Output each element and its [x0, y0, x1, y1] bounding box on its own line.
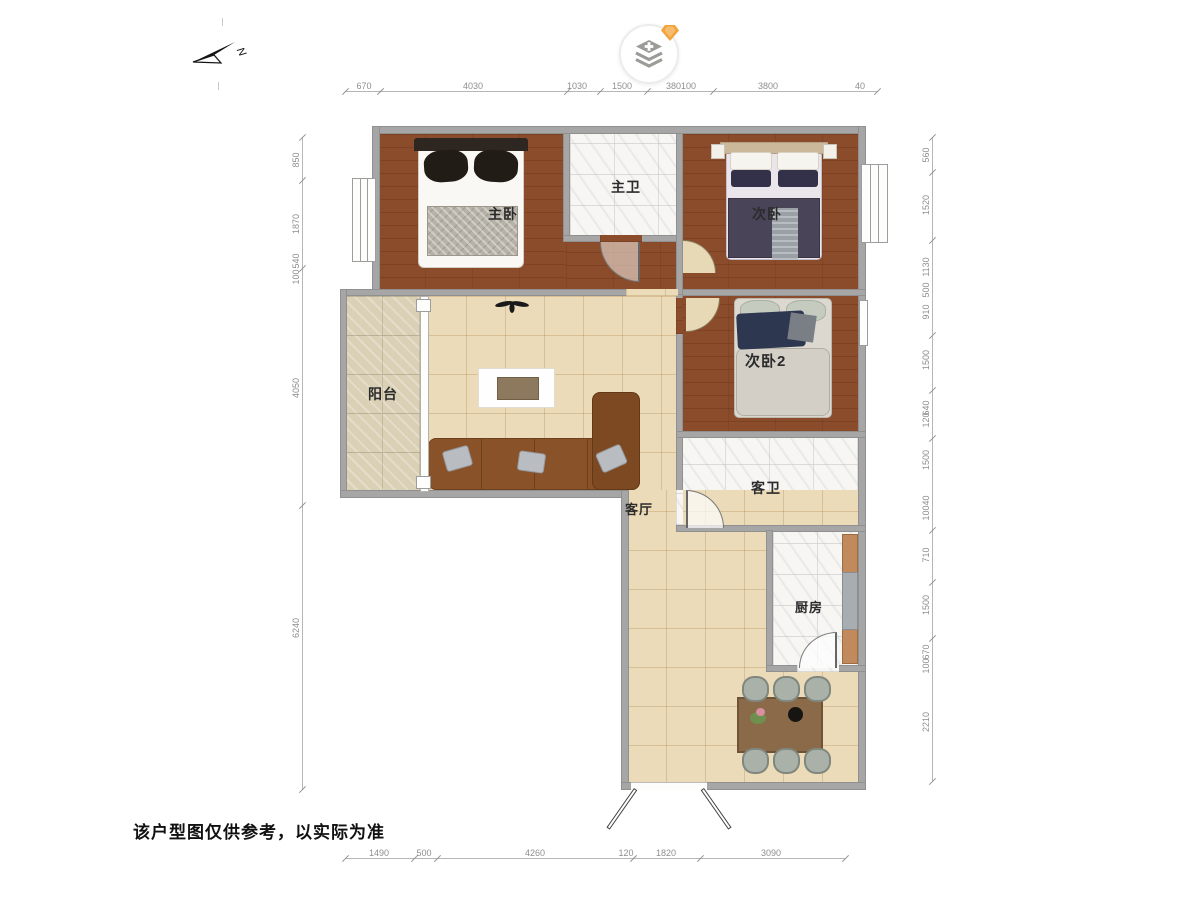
dim-label: 1500 — [612, 81, 632, 91]
dim-label: 500 — [416, 848, 431, 858]
dining-chair — [804, 676, 831, 702]
table-plate-icon — [788, 707, 803, 722]
wall-masterbed-bath — [563, 133, 570, 242]
dim-label: 560 — [921, 147, 931, 162]
dim-label: 10040 — [921, 495, 931, 520]
slider-track-bottom — [416, 476, 431, 489]
compass-tick-top — [222, 18, 223, 26]
dim-label: 4050 — [291, 378, 301, 398]
dim-label: 380100 — [666, 81, 696, 91]
dim-label: 3090 — [761, 848, 781, 858]
master-bed-pillow — [473, 149, 519, 183]
dim-label: 120 — [618, 848, 633, 858]
dining-chair — [804, 748, 831, 774]
dim-label: 40 — [855, 81, 865, 91]
kitchen-appliance — [842, 572, 858, 630]
room-label-living: 客厅 — [625, 499, 653, 518]
floorplan-page: N — [0, 0, 1200, 900]
dim-label: 4030 — [463, 81, 483, 91]
dim-label: 670 — [356, 81, 371, 91]
dim-label: 100 — [921, 658, 931, 673]
wall-mid-horizontal — [340, 289, 866, 296]
opening-guestbath-door — [676, 490, 683, 525]
bedroom2-nightstand — [711, 144, 725, 159]
opening-masterbath-door — [600, 235, 642, 242]
dim-label: 540 — [291, 253, 301, 268]
dining-chair — [773, 748, 800, 774]
room-label-guest-bath: 客卫 — [751, 478, 781, 498]
wall-lower-left — [621, 490, 629, 790]
compass-north-icon: N — [190, 30, 250, 80]
dimension-line-top — [345, 91, 877, 92]
window-master-bedroom-icon — [352, 178, 376, 262]
dim-label: 100 — [291, 269, 301, 284]
compass-label: N — [234, 46, 248, 59]
bedroom2-pillow-dark — [778, 170, 818, 187]
table-flowers-icon — [756, 708, 765, 716]
room-label-master-bath: 主卫 — [611, 177, 641, 197]
wall-bath-bedroom2 — [676, 133, 683, 296]
dim-label: 1520 — [921, 195, 931, 215]
dining-chair — [742, 676, 769, 702]
room-label-bedroom2: 次卧 — [752, 204, 782, 224]
bedroom3-cushion — [787, 312, 817, 342]
dimension-line-right — [932, 137, 933, 782]
room-label-master-bedroom: 主卧 — [488, 204, 518, 224]
opening-bedroom3-door — [676, 298, 683, 334]
dim-label: 1500 — [921, 450, 931, 470]
master-bed-headboard — [414, 138, 528, 151]
window-bedroom2-icon — [861, 164, 888, 243]
bedroom2-pillow-dark — [731, 170, 771, 187]
coffee-table — [497, 377, 539, 400]
dimension-line-left — [302, 137, 303, 790]
diamond-badge-icon — [660, 24, 680, 42]
entry-door-leaf-left-icon — [606, 788, 637, 830]
sofa-pillow — [517, 450, 547, 474]
compass-tick-bottom — [218, 82, 219, 90]
wall-balcony-left — [340, 289, 347, 498]
compass-control[interactable]: N — [190, 30, 250, 86]
dining-chair — [773, 676, 800, 702]
bedroom2-pillow — [777, 152, 819, 170]
dim-label: 1870 — [291, 214, 301, 234]
slider-track-top — [416, 299, 431, 312]
dim-label: 4260 — [525, 848, 545, 858]
dimension-line-bottom — [345, 858, 845, 859]
wall-top — [372, 126, 866, 134]
dim-label: 850 — [291, 152, 301, 167]
entry-door-leaf-right-icon — [701, 788, 732, 830]
tick-mark — [842, 855, 849, 862]
dim-label: 710 — [921, 547, 931, 562]
dining-table — [737, 697, 823, 753]
dim-label: 1490 — [369, 848, 389, 858]
tick-mark — [929, 778, 936, 785]
dining-chair — [742, 748, 769, 774]
tick-mark — [874, 88, 881, 95]
dim-label: 910 — [921, 304, 931, 319]
tick-mark — [299, 786, 306, 793]
dim-label: 670 — [921, 644, 931, 659]
sofa-chaise — [592, 392, 640, 490]
dim-label: 1820 — [656, 848, 676, 858]
disclaimer-text: 该户型图仅供参考，以实际为准 — [133, 818, 385, 843]
dim-label: 500 — [921, 282, 931, 297]
wall-living-bottom — [340, 490, 628, 498]
balcony-slider-icon — [420, 296, 429, 492]
room-label-balcony: 阳台 — [368, 384, 398, 404]
dim-label: 1130 — [921, 257, 931, 276]
dim-label: 1030 — [567, 81, 587, 91]
bedroom2-pillow — [730, 152, 772, 170]
bedroom2-nightstand — [823, 144, 837, 159]
wall-kitchen-left — [766, 530, 773, 672]
wall-bedroom3-bottom — [676, 431, 866, 438]
layers-icon — [632, 38, 666, 70]
dim-label: 120 — [921, 412, 931, 427]
dim-label: 1500 — [921, 350, 931, 370]
dim-label: 2210 — [921, 712, 931, 732]
opening-living-hall — [626, 289, 678, 296]
window-bedroom3-icon — [859, 300, 868, 346]
room-label-kitchen: 厨房 — [795, 597, 823, 616]
ceiling-fan-icon — [494, 296, 530, 314]
dim-label: 1500 — [921, 595, 931, 615]
dim-label: 6240 — [291, 618, 301, 638]
opening-entry-door — [631, 782, 707, 791]
dim-label: 3800 — [758, 81, 778, 91]
room-label-bedroom3: 次卧2 — [745, 350, 786, 371]
